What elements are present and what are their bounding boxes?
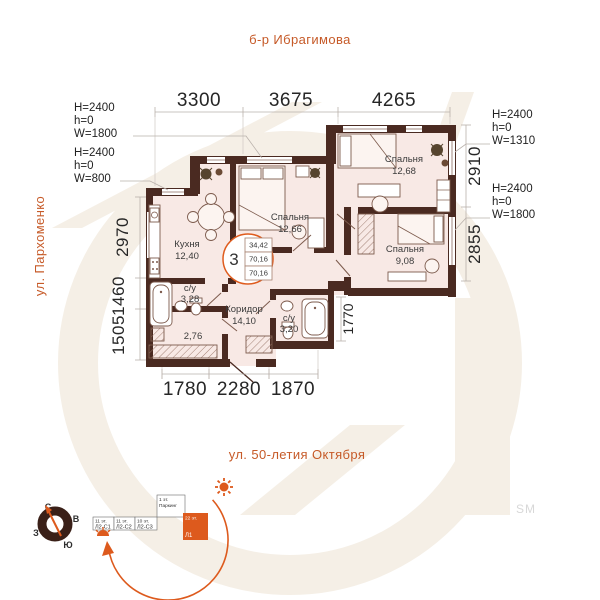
room-bedroom3-area: 9,08 [396,256,415,267]
room-hall-name: Коридор [225,304,263,315]
room-bath1-area: 3,28 [181,294,200,305]
ann4-l2: h=0 [492,196,512,208]
dim-bottom-3: 1870 [271,379,315,400]
bedroom3-wardrobe [358,214,374,254]
unit-badge: 3 34,42 70,16 70,16 [223,234,273,284]
ann1-l3: W=1800 [74,128,117,140]
ann2-l1: H=2400 [74,147,115,159]
scheme-tower-name: Л1 [185,533,193,539]
unit-area-total2: 70,16 [249,269,268,278]
window-w800 [162,189,184,195]
dim-left-3: 1505 [109,315,128,355]
window-w1310-right [449,141,455,175]
room-bedroom2-name: Спальня [385,154,423,165]
window-w1800-right [449,217,455,265]
sun-arc-arrowhead [102,541,114,556]
scheme-b3-name: Л2-С3 [137,525,153,531]
room-bedroom1-name: Спальня [271,212,309,223]
unit-area-living: 34,42 [249,241,268,250]
scheme-tower-floors: 22 эт. [185,516,197,522]
ann4-l3: W=1800 [492,209,535,221]
ann3-l3: W=1310 [492,135,535,147]
ann3-l1: H=2400 [492,109,533,121]
dim-left-1: 2970 [113,217,132,257]
window-top-small [207,157,225,163]
dim-top-2: 3675 [269,90,313,111]
room-kitchen-area: 12,40 [175,251,199,262]
dim-left-2: 1460 [109,276,128,316]
ann3-l2: h=0 [492,122,512,134]
window-bedroom2-b [406,126,422,132]
ann4-l1: H=2400 [492,183,533,195]
hall-cabinet [246,336,272,353]
scheme-parking-name: Паркинг [159,503,177,509]
street-bottom: ул. 50-летия Октября [229,447,366,462]
room-bath2-area: 3,20 [280,324,299,335]
room-storage-area: 2,76 [184,331,203,342]
ann1-l1: H=2400 [74,102,115,114]
floorplan-canvas: SM б-р Ибрагимова ул. Пархоменко ул. 50-… [0,0,600,600]
bedroom3-bed [398,214,444,244]
floorplan-page: SM б-р Ибрагимова ул. Пархоменко ул. 50-… [0,0,600,600]
window-w1800-top [247,157,292,163]
ann2-l3: W=800 [74,173,111,185]
dim-bottom-1: 1780 [163,379,207,400]
dim-inner-1770: 1770 [340,303,356,334]
compass-icon: С В З Ю [33,502,80,550]
kitchen-counter [149,205,160,278]
street-top: б-р Ибрагимова [249,32,351,47]
compass-s: Ю [63,540,72,550]
sun-icon [215,478,233,496]
compass-w: З [33,528,39,538]
ann1-l2: h=0 [74,115,94,127]
room-hall-area: 14,10 [232,316,256,327]
room-bedroom2-area: 12,68 [392,166,416,177]
dim-right-1: 2910 [465,146,484,186]
ann2-l2: h=0 [74,160,94,172]
scheme-b2-name: Л2-С2 [116,525,132,531]
dim-top-3: 4265 [372,90,416,111]
dim-bottom-2: 2280 [217,379,261,400]
window-bedroom2-a [343,126,387,132]
dim-right-2: 2855 [465,224,484,264]
plant-icon [310,168,320,178]
watermark-sm-label: SM [516,502,536,516]
room-kitchen-name: Кухня [174,239,199,250]
bath1-tub [150,282,172,326]
room-bedroom3-name: Спальня [386,244,424,255]
dim-top-1: 3300 [177,90,221,111]
room-bath1-name: с/у [184,283,196,294]
bath2-sink [281,301,293,311]
unit-number: 3 [229,250,238,269]
street-left: ул. Пархоменко [32,196,47,296]
scheme-parking-floors: 1 эт. [159,497,168,503]
room-bath2-name: с/у [283,313,295,324]
room-bedroom1-area: 12,66 [278,224,302,235]
unit-area-total: 70,16 [249,255,268,264]
compass-e: В [73,514,80,524]
bath2-tub [302,299,328,338]
